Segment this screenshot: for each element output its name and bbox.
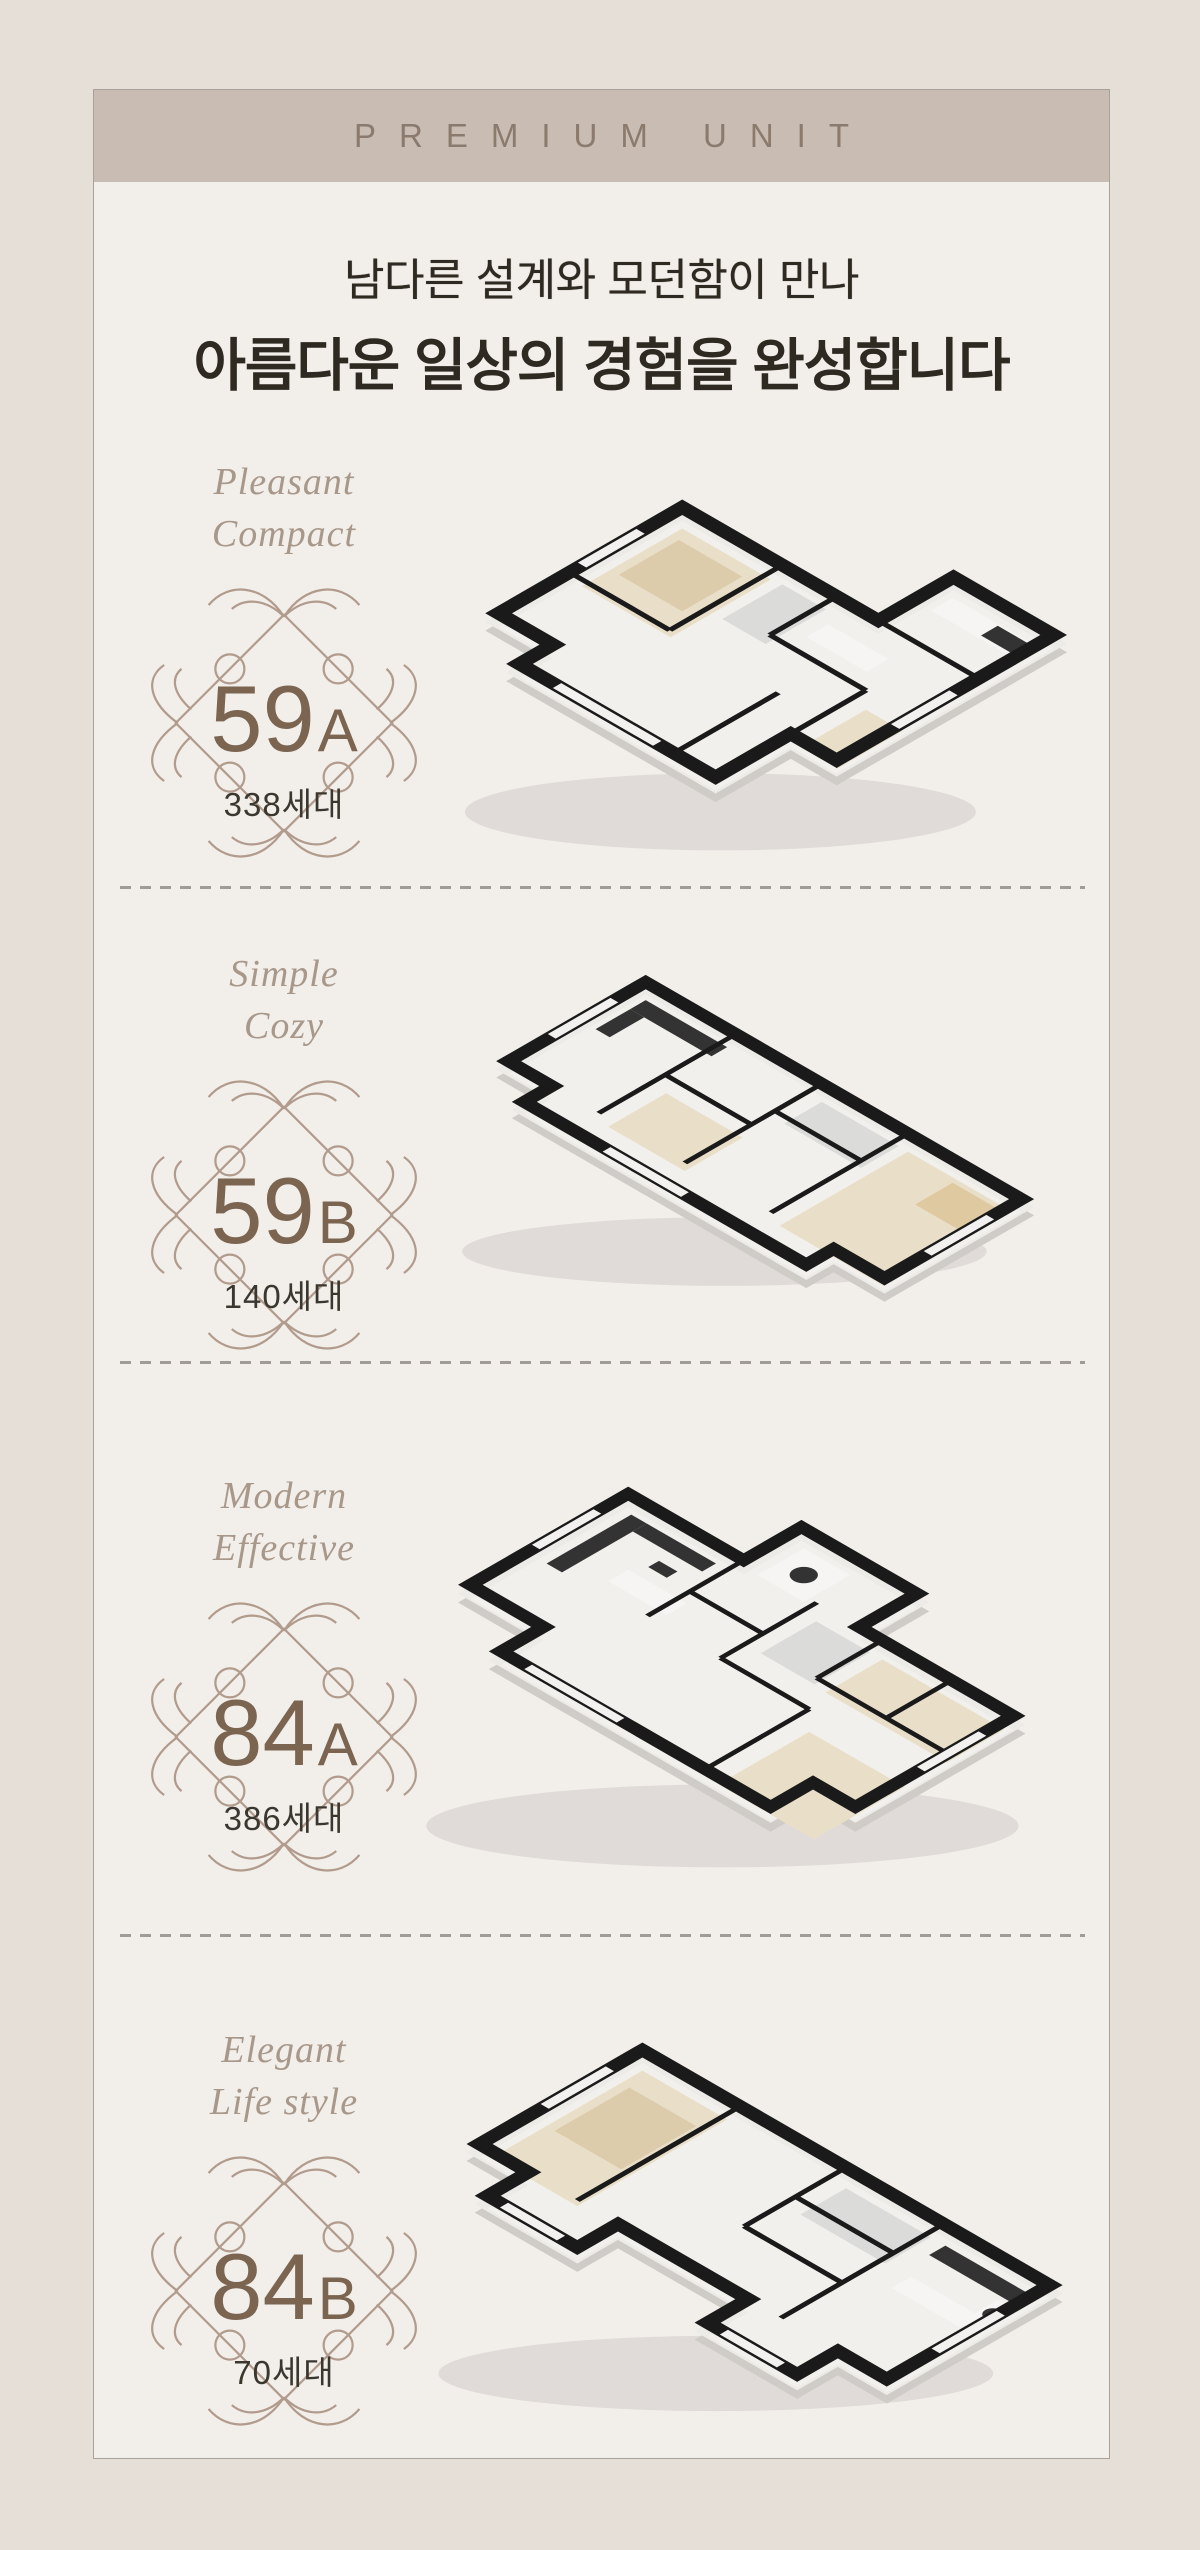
unit-section-59b: Simple Cozy 59 B 140세대: [134, 948, 434, 1360]
unit-code-number: 84: [210, 1686, 315, 1780]
section-divider: [120, 1934, 1085, 1937]
floorplan-84a-image: [416, 1431, 1088, 1895]
unit-tagline: Modern Effective: [134, 1470, 434, 1574]
unit-households: 386세대: [139, 1792, 429, 1840]
unit-code-letter: A: [318, 696, 358, 765]
unit-emblem: 84 A 386세대: [139, 1592, 429, 1882]
unit-tagline: Simple Cozy: [134, 948, 434, 1052]
tagline-line2: Compact: [134, 508, 434, 560]
unit-section-59a: Pleasant Compact 59 A 338세대: [134, 456, 434, 868]
floorplan-84a: [416, 1431, 1088, 1895]
unit-emblem: 59 B 140세대: [139, 1070, 429, 1360]
unit-code-letter: B: [318, 2264, 358, 2333]
tagline-line1: Pleasant: [134, 456, 434, 508]
unit-households: 140세대: [139, 1270, 429, 1318]
floorplan-59a-image: [431, 434, 1087, 887]
page-title-line2: 아름다운 일상의 경험을 완성합니다: [94, 320, 1109, 402]
header-title: PREMIUM UNIT: [331, 117, 872, 155]
header-band: PREMIUM UNIT: [94, 90, 1109, 182]
tagline-line1: Modern: [134, 1470, 434, 1522]
section-divider: [120, 1361, 1085, 1364]
unit-code-number: 84: [210, 2240, 315, 2334]
floorplan-59b: [444, 926, 1059, 1351]
tagline-line1: Elegant: [134, 2024, 434, 2076]
unit-households: 70세대: [139, 2346, 429, 2394]
tagline-line1: Simple: [134, 948, 434, 1000]
floorplan-84b-image: [424, 2002, 1064, 2444]
tagline-line2: Life style: [134, 2076, 434, 2128]
unit-code-letter: A: [318, 1710, 358, 1779]
tagline-line2: Cozy: [134, 1000, 434, 1052]
unit-households: 338세대: [139, 778, 429, 826]
floorplan-84b: [424, 2002, 1064, 2444]
page-title-line1: 남다른 설계와 모던함이 만나: [94, 244, 1109, 308]
unit-tagline: Elegant Life style: [134, 2024, 434, 2128]
page-frame: PREMIUM UNIT 남다른 설계와 모던함이 만나 아름다운 일상의 경험…: [93, 89, 1110, 2459]
unit-code: 84 B: [139, 2240, 429, 2334]
unit-emblem: 59 A 338세대: [139, 578, 429, 868]
floorplan-59a: [431, 434, 1087, 887]
unit-code-number: 59: [210, 672, 315, 766]
unit-code: 59 A: [139, 672, 429, 766]
floorplan-59b-image: [444, 926, 1059, 1351]
unit-code-number: 59: [210, 1164, 315, 1258]
unit-section-84b: Elegant Life style 84 B 70세대: [134, 2024, 434, 2436]
unit-emblem: 84 B 70세대: [139, 2146, 429, 2436]
unit-tagline: Pleasant Compact: [134, 456, 434, 560]
unit-section-84a: Modern Effective 84 A 386세대: [134, 1470, 434, 1882]
unit-code: 59 B: [139, 1164, 429, 1258]
page-title: 남다른 설계와 모던함이 만나 아름다운 일상의 경험을 완성합니다: [94, 182, 1109, 402]
unit-code: 84 A: [139, 1686, 429, 1780]
section-divider: [120, 886, 1085, 889]
unit-code-letter: B: [318, 1188, 358, 1257]
tagline-line2: Effective: [134, 1522, 434, 1574]
